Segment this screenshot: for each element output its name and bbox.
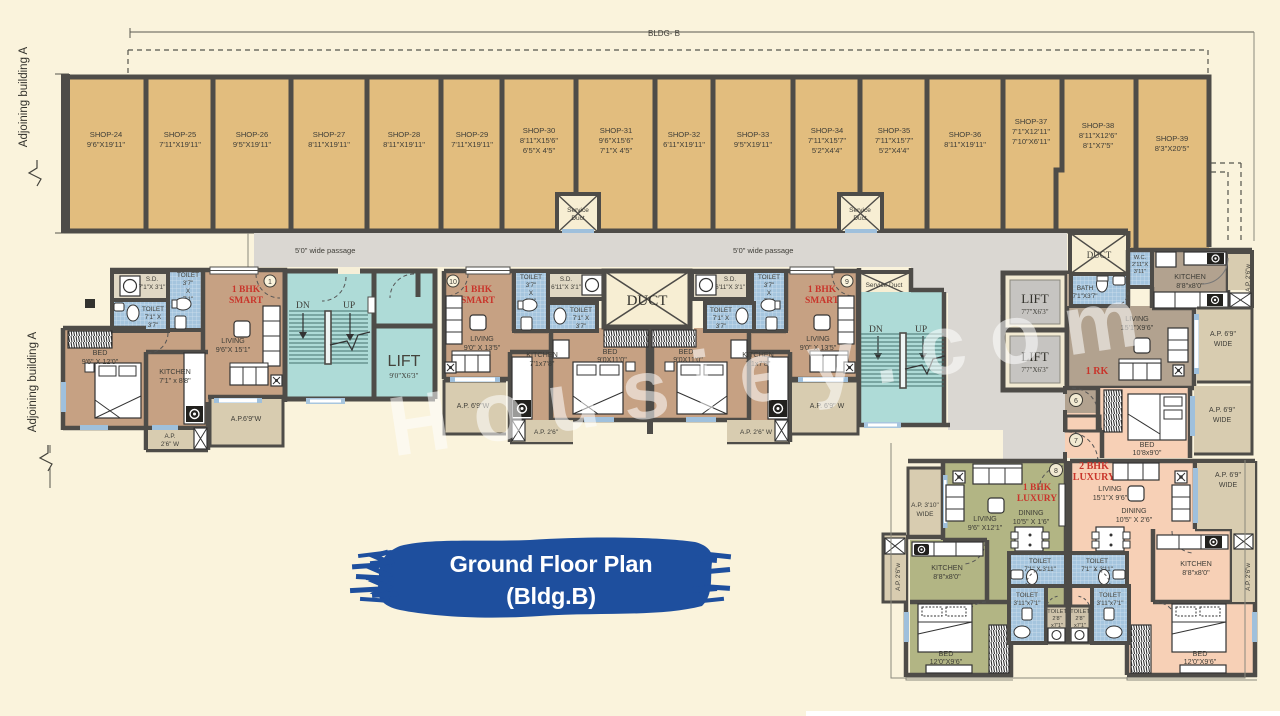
svg-text:5'0" wide passage: 5'0" wide passage <box>733 246 793 255</box>
svg-text:TOILET: TOILET <box>142 306 164 313</box>
svg-text:3'11"x7'1": 3'11"x7'1" <box>1013 600 1040 607</box>
svg-text:SHOP-25: SHOP-25 <box>164 130 197 139</box>
svg-text:8'11"X12'6": 8'11"X12'6" <box>1079 131 1117 140</box>
svg-text:8'8"x8'0": 8'8"x8'0" <box>1176 281 1204 290</box>
svg-text:9'6" X 12'0": 9'6" X 12'0" <box>82 357 119 366</box>
svg-text:SHOP-39: SHOP-39 <box>1156 134 1189 143</box>
svg-text:Adjoining building A: Adjoining building A <box>27 331 39 432</box>
svg-text:7'1" x 8'8": 7'1" x 8'8" <box>159 376 191 385</box>
svg-text:3'7": 3'7" <box>526 282 536 289</box>
svg-text:7: 7 <box>1074 438 1078 445</box>
svg-text:SHOP-27: SHOP-27 <box>313 130 346 139</box>
svg-text:TOILET: TOILET <box>177 272 199 279</box>
svg-text:Ground Floor Plan: Ground Floor Plan <box>450 551 653 577</box>
svg-text:SMART: SMART <box>805 296 840 306</box>
svg-text:DINING: DINING <box>1121 506 1147 515</box>
svg-text:10'8x9'0": 10'8x9'0" <box>1133 448 1162 457</box>
svg-text:7'11"X19'11": 7'11"X19'11" <box>451 140 493 149</box>
svg-text:SHOP-37: SHOP-37 <box>1015 117 1048 126</box>
svg-text:SHOP-31: SHOP-31 <box>600 126 633 135</box>
svg-text:A.P.6'9"W: A.P.6'9"W <box>231 416 262 423</box>
svg-text:DINING: DINING <box>1018 508 1044 517</box>
svg-text:TOILET: TOILET <box>1029 558 1051 565</box>
svg-text:A.P. 6'9": A.P. 6'9" <box>1215 472 1241 479</box>
svg-text:7'10"X6'11": 7'10"X6'11" <box>1012 137 1050 146</box>
svg-text:Service: Service <box>849 207 871 214</box>
svg-text:7'11"X15'7": 7'11"X15'7" <box>875 136 913 145</box>
svg-text:TOILET: TOILET <box>1086 558 1108 565</box>
svg-text:3'7": 3'7" <box>148 322 158 329</box>
svg-text:5'0" wide passage: 5'0" wide passage <box>295 246 355 255</box>
svg-text:WIDE: WIDE <box>1214 341 1233 348</box>
svg-text:6'11"X 3'1": 6'11"X 3'1" <box>551 284 581 291</box>
svg-text:SHOP-26: SHOP-26 <box>236 130 269 139</box>
svg-text:1 BHK: 1 BHK <box>232 285 261 295</box>
svg-text:A.P. 2'6"w: A.P. 2'6"w <box>895 563 902 591</box>
svg-text:TOILET: TOILET <box>520 274 542 281</box>
svg-text:2 BHK: 2 BHK <box>1079 461 1109 472</box>
svg-text:8'11"X15'6": 8'11"X15'6" <box>520 136 558 145</box>
svg-text:W.C.: W.C. <box>1134 255 1147 261</box>
svg-text:LIFT: LIFT <box>388 353 421 370</box>
svg-text:KITCHEN: KITCHEN <box>931 563 963 572</box>
svg-text:TOILET: TOILET <box>1070 609 1090 615</box>
svg-text:SHOP-32: SHOP-32 <box>668 130 701 139</box>
svg-text:8'8"x8'0": 8'8"x8'0" <box>1182 568 1210 577</box>
svg-text:Service: Service <box>567 207 589 214</box>
svg-text:SHOP-36: SHOP-36 <box>949 130 982 139</box>
svg-text:A.P. 6'9": A.P. 6'9" <box>1209 407 1235 414</box>
svg-text:(Bldg.B): (Bldg.B) <box>506 583 596 609</box>
svg-text:10'5" X 1'6": 10'5" X 1'6" <box>1013 517 1050 526</box>
svg-text:WIDE: WIDE <box>917 511 935 518</box>
svg-text:6'11"X 3'1": 6'11"X 3'1" <box>715 284 745 291</box>
svg-text:3'7": 3'7" <box>183 280 193 287</box>
svg-text:10'5" X 2'6": 10'5" X 2'6" <box>1116 515 1153 524</box>
svg-text:LIVING: LIVING <box>973 514 997 523</box>
svg-text:A.P.: A.P. <box>164 433 175 440</box>
svg-text:SHOP-30: SHOP-30 <box>523 126 556 135</box>
svg-text:3'7": 3'7" <box>576 323 586 330</box>
svg-text:7'1"X 4'5": 7'1"X 4'5" <box>600 146 633 155</box>
svg-text:Duct: Duct <box>853 215 867 222</box>
svg-text:9'6"X 15'1": 9'6"X 15'1" <box>216 345 251 354</box>
svg-text:TOILET: TOILET <box>1016 592 1038 599</box>
svg-text:SHOP-34: SHOP-34 <box>811 126 844 135</box>
svg-text:DUCT: DUCT <box>1087 250 1112 260</box>
svg-text:9: 9 <box>845 279 849 286</box>
svg-text:8'8"x8'0": 8'8"x8'0" <box>933 572 961 581</box>
svg-text:7'1"X 3'1": 7'1"X 3'1" <box>139 284 166 291</box>
svg-text:7'1" X: 7'1" X <box>573 315 590 322</box>
svg-text:DN: DN <box>296 301 310 311</box>
svg-text:5'2"X4'4": 5'2"X4'4" <box>879 146 910 155</box>
svg-text:7'1" X: 7'1" X <box>145 314 162 321</box>
svg-text:SMART: SMART <box>229 296 264 306</box>
svg-text:TOILET: TOILET <box>1047 609 1067 615</box>
svg-text:DUCT: DUCT <box>627 293 668 309</box>
svg-text:LIVING: LIVING <box>470 334 494 343</box>
svg-text:SHOP-29: SHOP-29 <box>456 130 489 139</box>
svg-text:TOILET: TOILET <box>1099 592 1121 599</box>
svg-text:7'11"X19'11": 7'11"X19'11" <box>159 140 201 149</box>
svg-text:2'8": 2'8" <box>1075 616 1084 622</box>
svg-text:9'5"X19'11": 9'5"X19'11" <box>233 140 271 149</box>
svg-text:10: 10 <box>449 279 457 286</box>
svg-text:6: 6 <box>1074 398 1078 405</box>
svg-text:1 BHK: 1 BHK <box>1023 483 1052 493</box>
svg-text:Service Duct: Service Duct <box>866 282 903 289</box>
svg-text:3'7": 3'7" <box>716 323 726 330</box>
svg-text:SHOP-28: SHOP-28 <box>388 130 421 139</box>
svg-text:LUXURY: LUXURY <box>1017 494 1057 504</box>
svg-text:8'11"X19'11": 8'11"X19'11" <box>308 140 350 149</box>
svg-text:7'1"X12'11": 7'1"X12'11" <box>1012 127 1050 136</box>
svg-text:S.D.: S.D. <box>146 276 158 283</box>
svg-text:SHOP-33: SHOP-33 <box>737 130 770 139</box>
svg-text:TOILET: TOILET <box>570 307 592 314</box>
svg-text:TOILET: TOILET <box>758 274 780 281</box>
svg-text:LIVING: LIVING <box>1098 484 1122 493</box>
svg-text:1 BHK: 1 BHK <box>808 285 837 295</box>
svg-text:5'2"X4'4": 5'2"X4'4" <box>812 146 843 155</box>
svg-text:6'11"X19'11": 6'11"X19'11" <box>663 140 705 149</box>
svg-text:9'6"X15'6": 9'6"X15'6" <box>599 136 634 145</box>
svg-text:6'5"X 4'5": 6'5"X 4'5" <box>523 146 556 155</box>
svg-text:7'1" X: 7'1" X <box>713 315 730 322</box>
svg-text:S.D.: S.D. <box>724 276 736 283</box>
svg-text:7'11"X15'7": 7'11"X15'7" <box>808 136 846 145</box>
svg-text:2'6" W: 2'6" W <box>161 441 179 448</box>
svg-text:Adjoining building A: Adjoining building A <box>18 46 30 147</box>
svg-text:TOILET: TOILET <box>710 307 732 314</box>
svg-text:UP: UP <box>343 301 355 311</box>
svg-text:9'5"X19'11": 9'5"X19'11" <box>734 140 772 149</box>
svg-text:8'1"X7'5": 8'1"X7'5" <box>1083 141 1114 150</box>
svg-text:WIDE: WIDE <box>1219 482 1238 489</box>
svg-text:8'11"X19'11": 8'11"X19'11" <box>944 140 986 149</box>
svg-text:A.P. 6'9": A.P. 6'9" <box>1210 331 1236 338</box>
svg-text:8'3"X20'5": 8'3"X20'5" <box>1155 144 1190 153</box>
svg-text:Duct: Duct <box>571 215 585 222</box>
svg-text:8'11"X19'11": 8'11"X19'11" <box>383 140 425 149</box>
svg-text:3'7": 3'7" <box>764 282 774 289</box>
svg-text:A.P. 2'6" W: A.P. 2'6" W <box>740 429 773 436</box>
svg-text:A.P. 3'10": A.P. 3'10" <box>911 502 939 509</box>
svg-text:9'6" X12'1": 9'6" X12'1" <box>968 523 1003 532</box>
svg-text:1: 1 <box>268 279 272 286</box>
svg-text:KITCHEN: KITCHEN <box>1174 272 1206 281</box>
svg-text:SHOP-38: SHOP-38 <box>1082 121 1115 130</box>
svg-text:BLDG- B: BLDG- B <box>648 29 680 38</box>
svg-text:3'11"x7'1": 3'11"x7'1" <box>1096 600 1123 607</box>
svg-text:WIDE: WIDE <box>1213 417 1232 424</box>
svg-text:9'6"X19'11": 9'6"X19'11" <box>87 140 125 149</box>
svg-text:2'8": 2'8" <box>1052 616 1061 622</box>
svg-text:BED: BED <box>93 348 108 357</box>
svg-text:SHOP-24: SHOP-24 <box>90 130 123 139</box>
svg-text:KITCHEN: KITCHEN <box>159 367 191 376</box>
svg-text:15'1"X 9'6": 15'1"X 9'6" <box>1093 493 1128 502</box>
svg-text:A.P. 2'6"w: A.P. 2'6"w <box>1245 563 1252 591</box>
svg-text:LUXURY: LUXURY <box>1073 472 1116 483</box>
svg-text:SMART: SMART <box>461 296 496 306</box>
svg-text:SHOP-35: SHOP-35 <box>878 126 911 135</box>
svg-text:1 BHK: 1 BHK <box>464 285 493 295</box>
svg-text:KITCHEN: KITCHEN <box>1180 559 1212 568</box>
svg-text:S.D.: S.D. <box>560 276 572 283</box>
svg-text:8: 8 <box>1054 468 1058 475</box>
